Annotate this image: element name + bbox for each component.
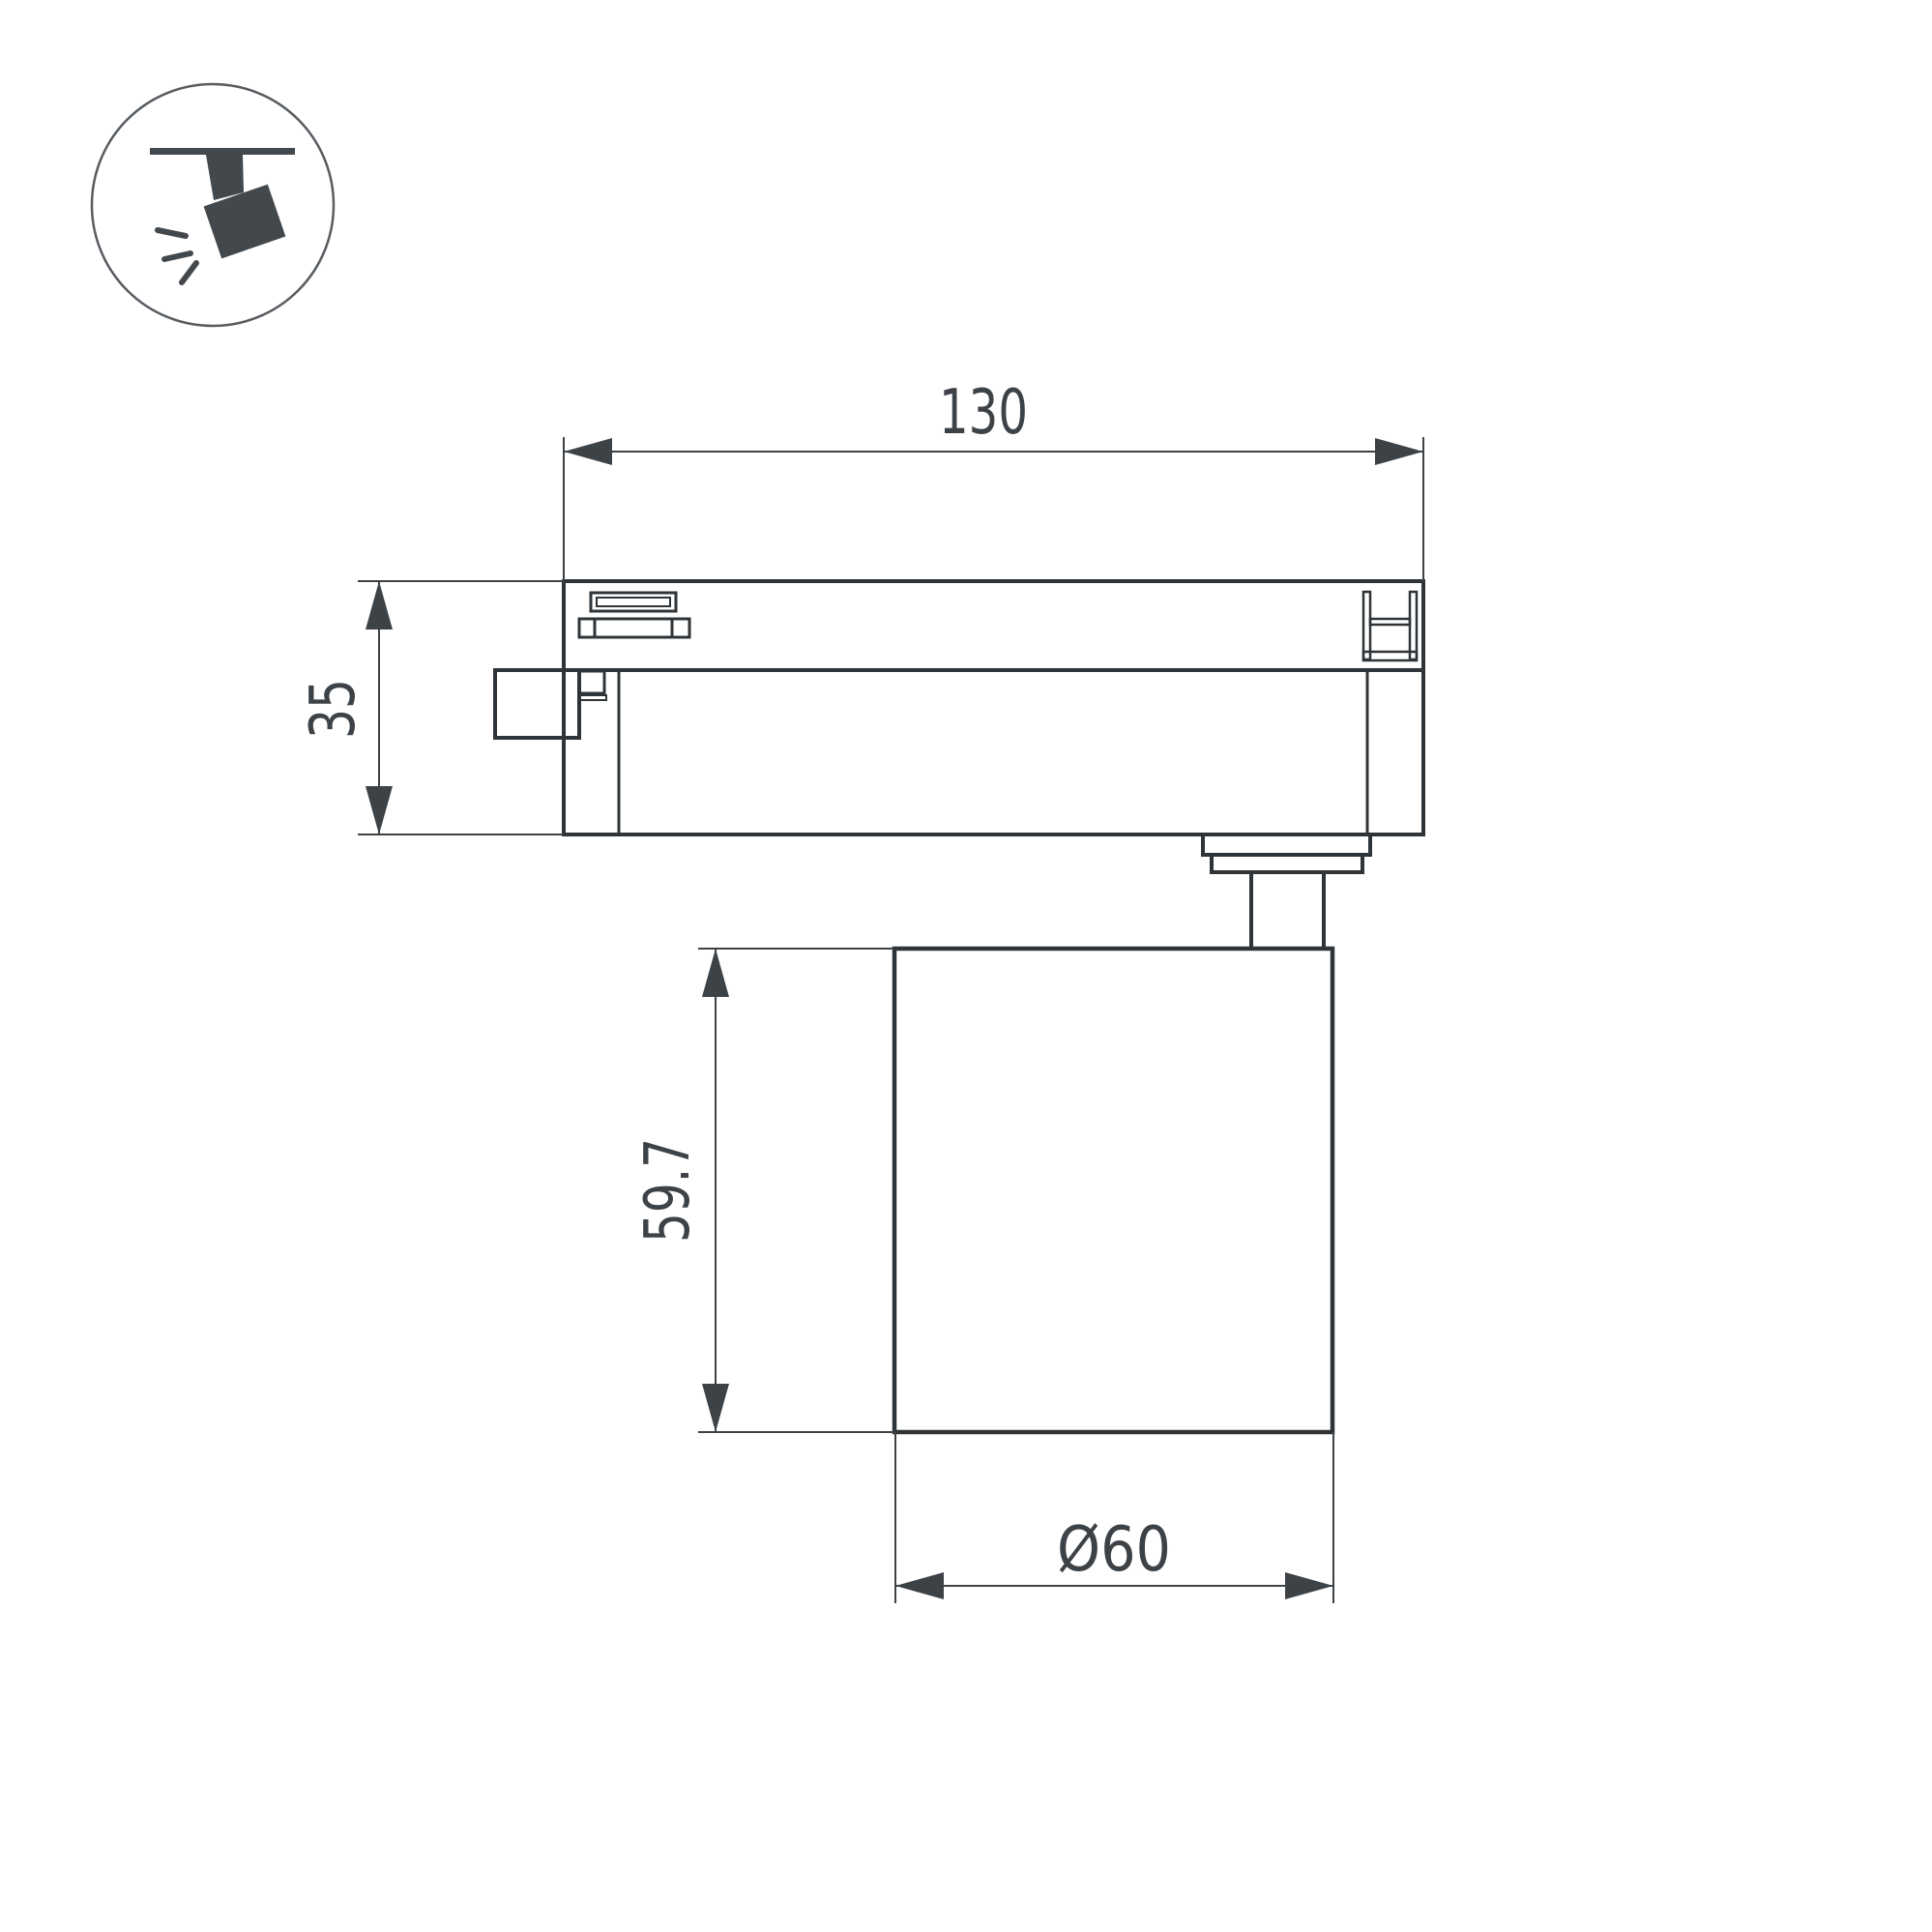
dimension-label-body-diameter: Ø60: [1057, 1514, 1171, 1586]
dimension-label-adapter-height: 35: [298, 679, 369, 739]
lock-knob-lip: [579, 695, 606, 700]
joint-flange-lower: [1212, 855, 1362, 872]
arrowhead-left: [564, 438, 612, 465]
contact-clip: [1363, 592, 1417, 660]
dimension-label-width-total: 130: [939, 377, 1028, 449]
lamp-body: [894, 949, 1332, 1432]
joint-stem: [1251, 872, 1324, 949]
track-ceiling-line-icon: [150, 148, 295, 155]
lock-knob: [495, 670, 579, 738]
dimension-width-total: 130: [564, 377, 1423, 581]
arrowhead-right: [1285, 1572, 1333, 1599]
arrowhead-top: [366, 581, 393, 629]
dimension-label-body-height: 59.7: [632, 1138, 704, 1243]
arrowhead-bottom: [702, 1384, 729, 1432]
arrowhead-right: [1375, 438, 1423, 465]
technical-drawing: 130 35 59.7 Ø60: [0, 0, 1932, 1932]
arrowhead-left: [895, 1572, 944, 1599]
arrowhead-bottom: [366, 786, 393, 834]
swivel-joint: [1203, 834, 1370, 949]
drawing-canvas: 130 35 59.7 Ø60: [0, 0, 1932, 1932]
spring-clip-upper: [591, 593, 676, 611]
dimension-adapter-height: 35: [298, 581, 564, 834]
dimension-body-diameter: Ø60: [895, 1432, 1333, 1603]
spring-clip-upper-inner: [597, 598, 670, 606]
adapter-outline: [564, 581, 1423, 834]
mount-type-badge: [92, 84, 334, 326]
arrowhead-top: [702, 949, 729, 997]
track-adapter: [495, 581, 1423, 834]
contact-clip-crossbar: [1370, 619, 1410, 625]
dimension-body-height: 59.7: [632, 949, 894, 1432]
joint-flange-upper: [1203, 834, 1370, 855]
lock-knob-notch: [579, 671, 604, 693]
